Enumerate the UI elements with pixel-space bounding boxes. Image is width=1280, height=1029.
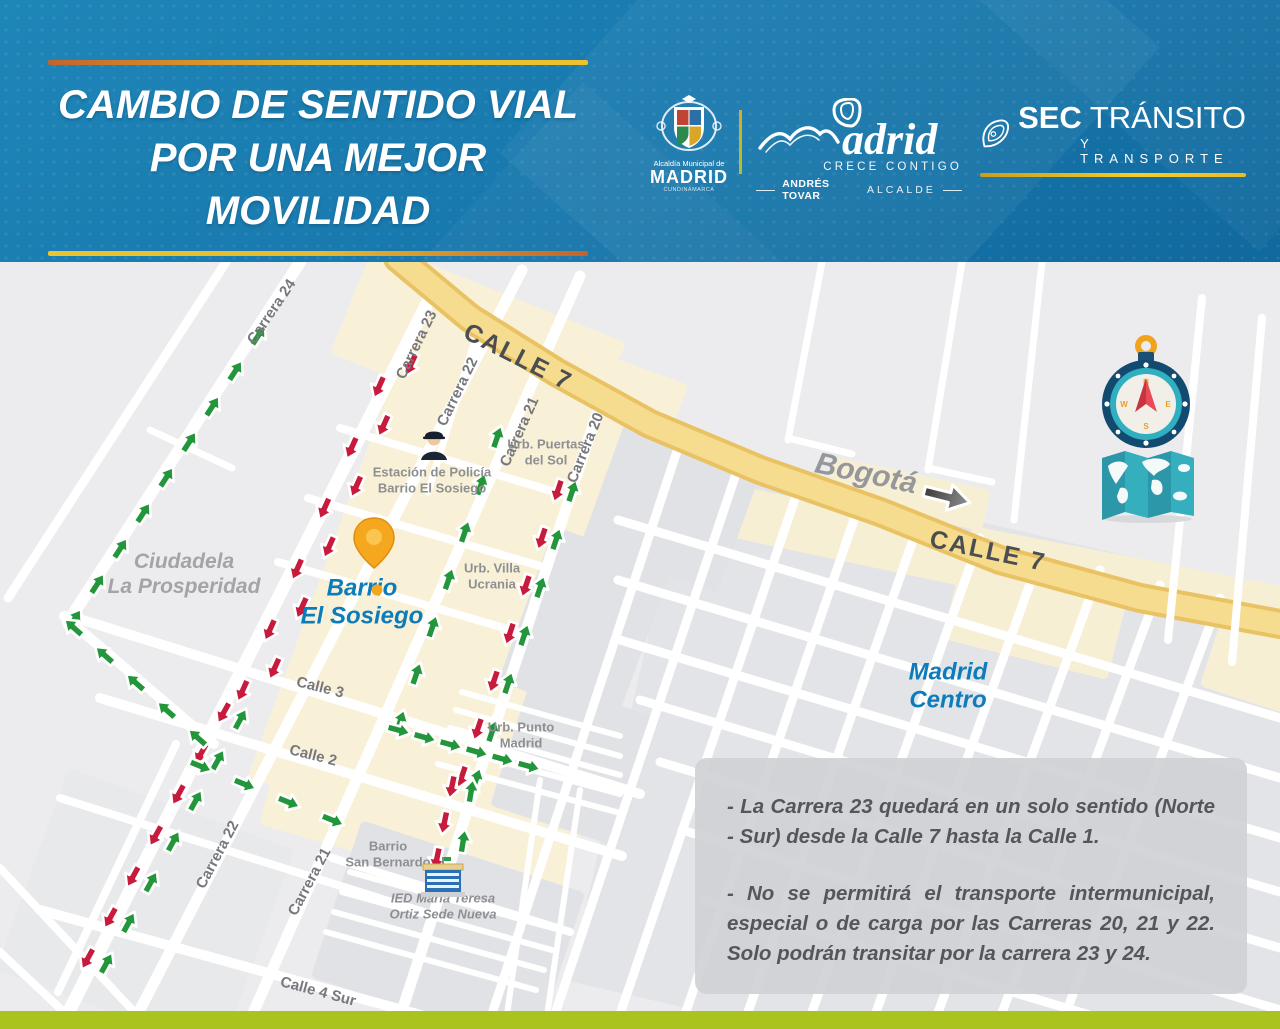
mayor-line: ANDRÉS TOVAR ALCALDE [756, 178, 962, 202]
header-banner: CAMBIO DE SENTIDO VIAL POR UNA MEJOR MOV… [0, 0, 1280, 262]
title-top-rule [48, 60, 588, 65]
street-line [788, 262, 822, 440]
title-line-1: CAMBIO DE SENTIDO VIAL [36, 79, 600, 132]
dash-rule [943, 190, 962, 191]
mayor-name: ANDRÉS TOVAR [782, 178, 860, 202]
title-bottom-rule [48, 251, 588, 256]
announcement-note-box: - La Carrera 23 quedará en un solo senti… [695, 758, 1247, 994]
sec-label: SEC [1018, 100, 1082, 135]
street-line [1014, 262, 1042, 520]
police-officer-icon [419, 426, 449, 465]
title-block: CAMBIO DE SENTIDO VIAL POR UNA MEJOR MOV… [36, 60, 600, 256]
mayor-role: ALCALDE [867, 184, 936, 196]
madrid-logo-tagline: CRECE CONTIGO [756, 161, 962, 173]
note-paragraph-1: - La Carrera 23 quedará en un solo senti… [727, 792, 1215, 853]
sec-transito-logo: SECTRÁNSITO Y TRANSPORTE [980, 102, 1246, 177]
street-line [788, 438, 852, 454]
madrid-wordmark: adrid [756, 98, 962, 164]
svg-text:W: W [1120, 400, 1128, 409]
transporte-label: Y TRANSPORTE [1080, 136, 1246, 166]
svg-text:E: E [1165, 400, 1171, 409]
location-pin-icon [352, 516, 396, 603]
madrid-coat-of-arms: Alcaldía Municipal de MADRID CUNDINAMARC… [644, 94, 734, 193]
coat-of-arms-icon [647, 94, 731, 152]
street-map: Carrera 24Carrera 23Carrera 22Carrera 21… [0, 262, 1280, 1029]
school-building-icon [420, 857, 466, 904]
svg-text:S: S [1143, 422, 1149, 431]
world-map-icon [1100, 448, 1196, 529]
infographic-page: CAMBIO DE SENTIDO VIAL POR UNA MEJOR MOV… [0, 0, 1280, 1029]
crest-text-madrid: MADRID [644, 168, 734, 187]
crest-text-sub: CUNDINAMARCA [644, 187, 734, 193]
dash-rule [756, 190, 775, 191]
madrid-crece-contigo-logo: adrid CRECE CONTIGO ANDRÉS TOVAR ALCALDE [756, 98, 962, 202]
page-title: CAMBIO DE SENTIDO VIAL POR UNA MEJOR MOV… [36, 79, 600, 237]
transito-label: TRÁNSITO [1090, 100, 1246, 135]
svg-text:adrid: adrid [842, 115, 938, 164]
logo-divider [739, 110, 742, 174]
title-line-2: POR UNA MEJOR MOVILIDAD [36, 132, 600, 238]
footer-bar [0, 1011, 1280, 1029]
street-line [928, 262, 962, 470]
sec-logo-underline [980, 173, 1246, 177]
compass-icon: NS WE [1096, 334, 1196, 461]
leaf-swirl-icon [980, 106, 1010, 162]
note-paragraph-2: - No se permitirá el transporte intermun… [727, 879, 1215, 970]
